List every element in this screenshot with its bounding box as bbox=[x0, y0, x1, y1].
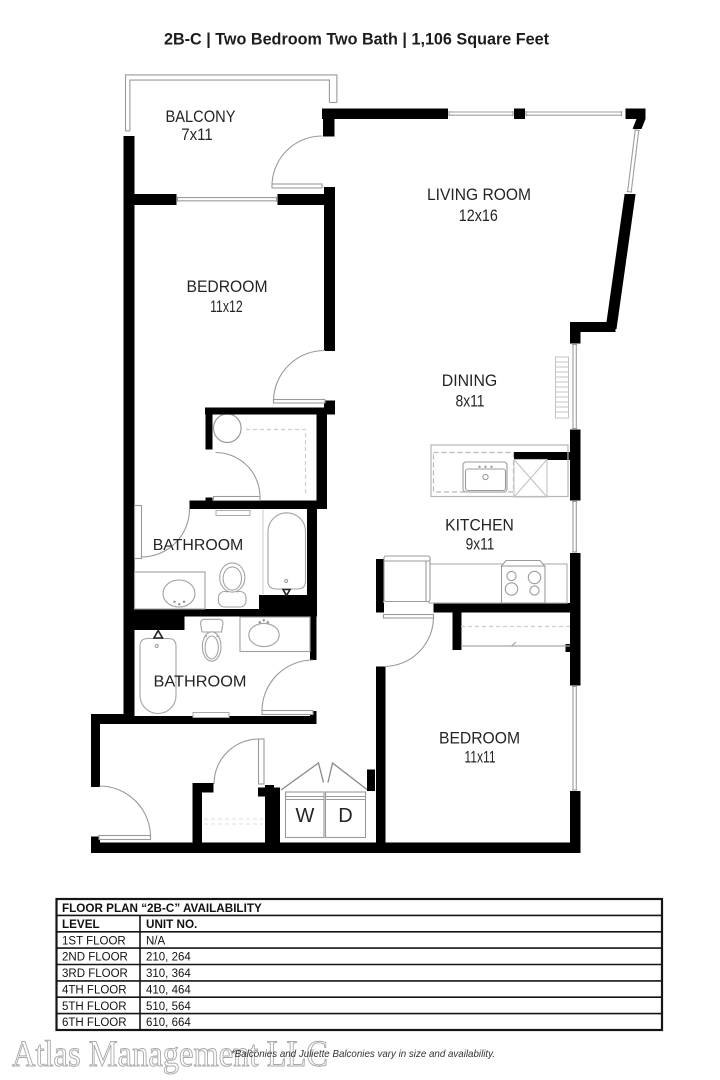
svg-text:12x16: 12x16 bbox=[459, 206, 498, 225]
svg-text:BALCONY: BALCONY bbox=[166, 107, 236, 126]
svg-text:6TH FLOOR: 6TH FLOOR bbox=[62, 1017, 127, 1029]
svg-text:4TH FLOOR: 4TH FLOOR bbox=[62, 984, 127, 996]
svg-text:UNIT NO.: UNIT NO. bbox=[146, 918, 197, 931]
svg-text:N/A: N/A bbox=[146, 935, 166, 947]
svg-text:3RD FLOOR: 3RD FLOOR bbox=[62, 968, 128, 980]
svg-text:LIVING ROOM: LIVING ROOM bbox=[427, 185, 531, 204]
svg-text:BEDROOM: BEDROOM bbox=[187, 277, 268, 296]
svg-text:610, 664: 610, 664 bbox=[146, 1017, 191, 1029]
svg-text:*Balconies and Juliette Balcon: *Balconies and Juliette Balconies vary i… bbox=[231, 1048, 495, 1060]
svg-text:410, 464: 410, 464 bbox=[146, 984, 191, 996]
svg-text:11x12: 11x12 bbox=[210, 297, 243, 316]
svg-text:KITCHEN: KITCHEN bbox=[445, 516, 514, 535]
svg-text:LEVEL: LEVEL bbox=[62, 918, 100, 931]
svg-text:11x11: 11x11 bbox=[464, 748, 495, 767]
svg-text:FLOOR PLAN “2B-C” AVAILABILITY: FLOOR PLAN “2B-C” AVAILABILITY bbox=[62, 902, 262, 915]
svg-text:DINING: DINING bbox=[442, 371, 498, 390]
svg-text:5TH FLOOR: 5TH FLOOR bbox=[62, 1001, 127, 1013]
svg-text:310, 364: 310, 364 bbox=[146, 968, 191, 980]
svg-text:210, 264: 210, 264 bbox=[146, 952, 191, 964]
svg-text:D: D bbox=[338, 805, 352, 827]
svg-text:8x11: 8x11 bbox=[456, 392, 485, 411]
svg-text:2B-C | Two Bedroom Two Bath |: 2B-C | Two Bedroom Two Bath | 1,106 Squa… bbox=[164, 30, 549, 49]
svg-text:7x11: 7x11 bbox=[181, 125, 212, 144]
svg-text:9x11: 9x11 bbox=[466, 535, 495, 554]
svg-text:BEDROOM: BEDROOM bbox=[439, 729, 520, 748]
svg-text:BATHROOM: BATHROOM bbox=[154, 674, 247, 691]
svg-text:BATHROOM: BATHROOM bbox=[153, 537, 244, 554]
svg-text:1ST FLOOR: 1ST FLOOR bbox=[62, 935, 126, 947]
svg-text:510, 564: 510, 564 bbox=[146, 1001, 191, 1013]
svg-text:W: W bbox=[296, 805, 315, 827]
svg-text:2ND FLOOR: 2ND FLOOR bbox=[62, 952, 128, 964]
